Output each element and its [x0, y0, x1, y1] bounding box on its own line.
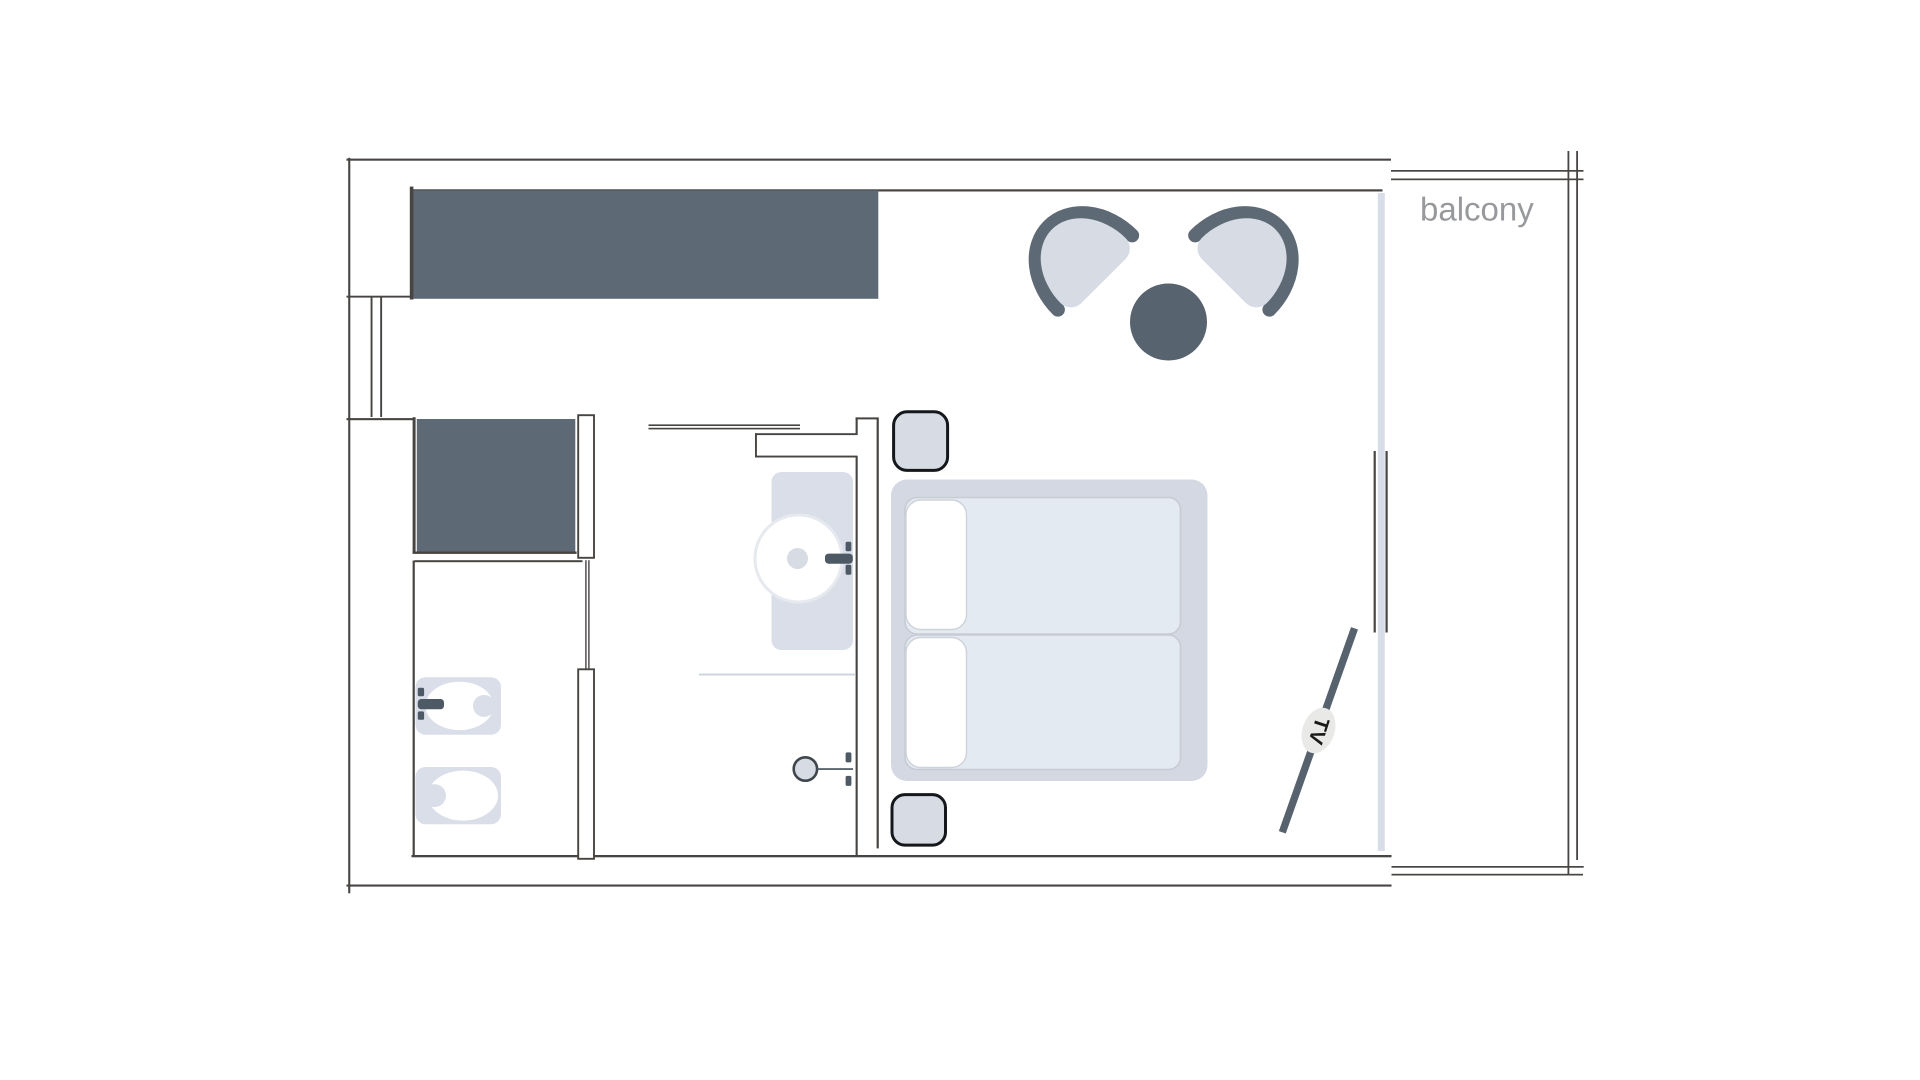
svg-text:balcony: balcony	[1420, 191, 1534, 228]
